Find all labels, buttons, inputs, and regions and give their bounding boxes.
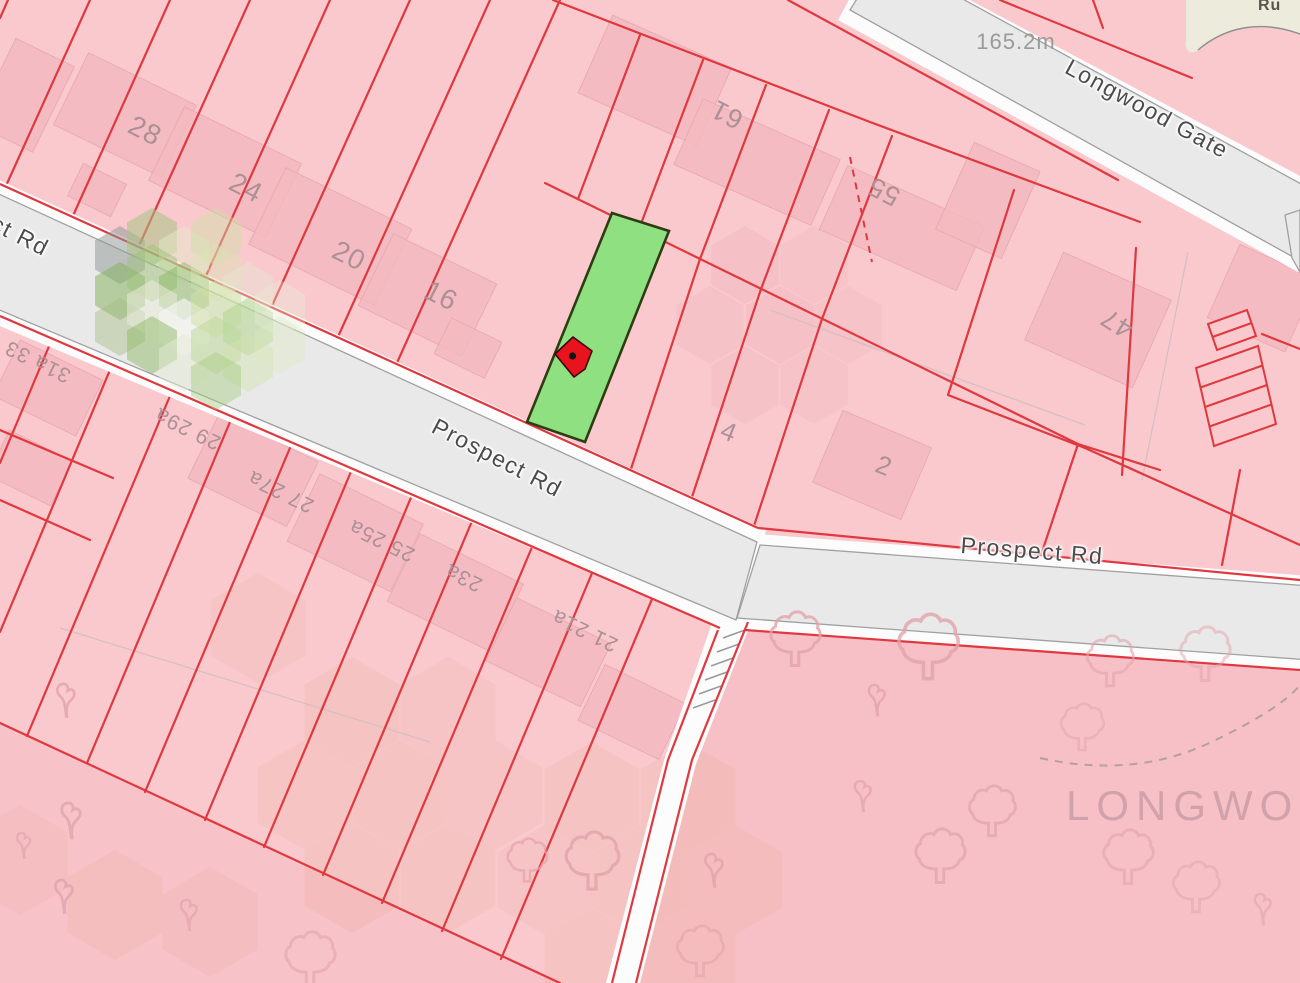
map-canvas[interactable]: ct Rd Prospect Rd Prospect Rd Longwood G… [0, 0, 1300, 983]
map-graphics [0, 0, 1300, 983]
